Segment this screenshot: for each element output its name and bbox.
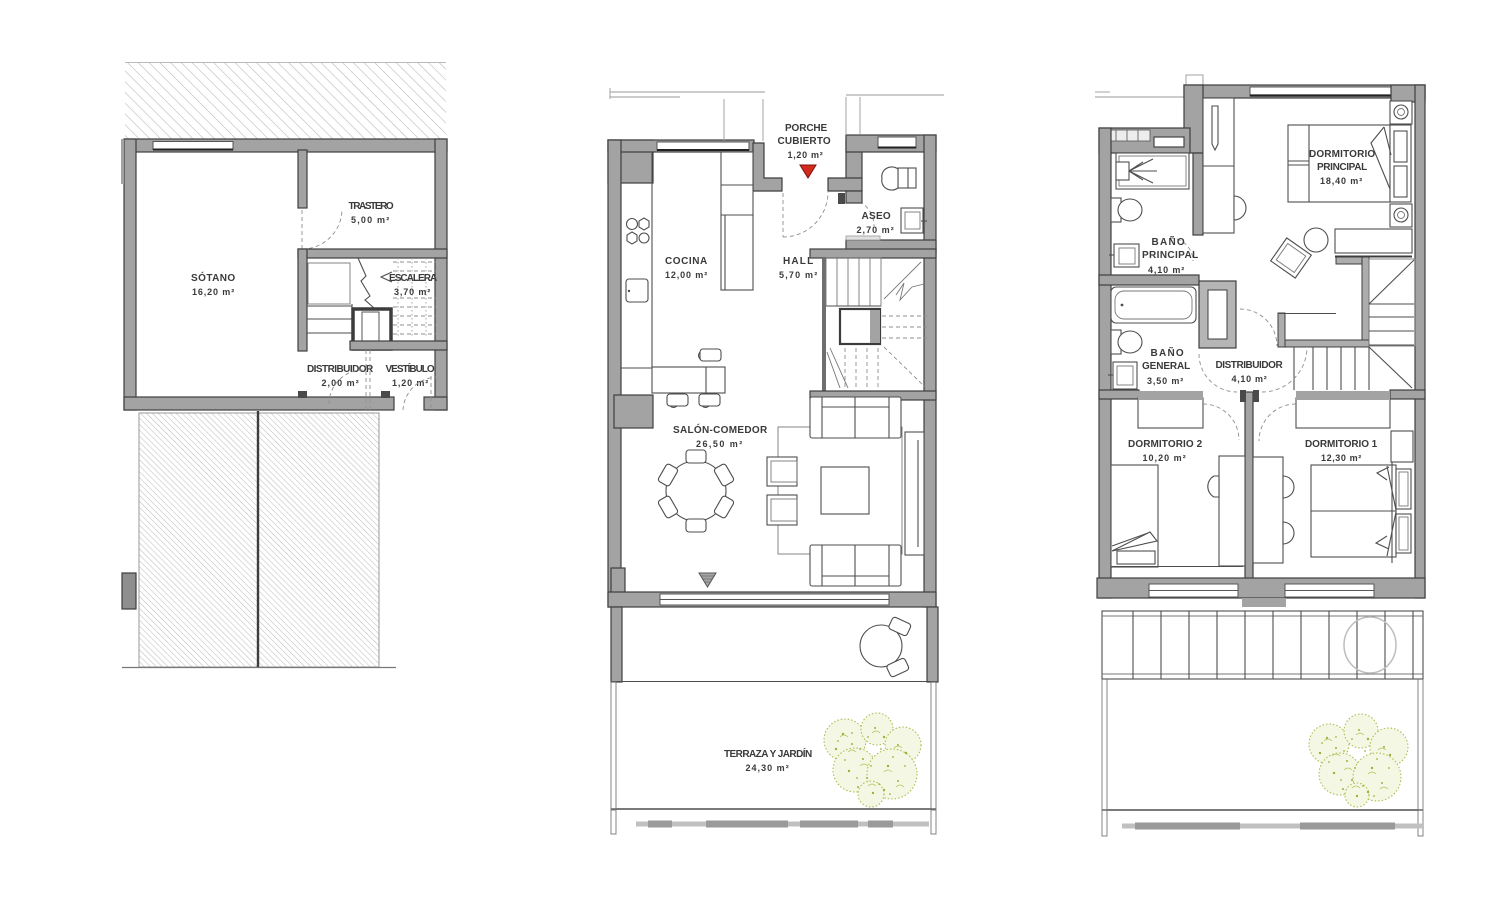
svg-text:2,00 m²: 2,00 m² (322, 378, 359, 388)
svg-text:1,20 m²: 1,20 m² (392, 378, 428, 388)
svg-text:GENERAL: GENERAL (1142, 361, 1190, 372)
svg-text:CUBIERTO: CUBIERTO (778, 136, 831, 147)
svg-text:PORCHE: PORCHE (785, 123, 828, 134)
svg-text:4,10 m²: 4,10 m² (1148, 265, 1184, 275)
svg-text:ASEO: ASEO (862, 211, 891, 222)
svg-text:SALÓN-COMEDOR: SALÓN-COMEDOR (673, 423, 768, 436)
svg-text:26,50 m²: 26,50 m² (696, 439, 742, 449)
svg-text:HALL: HALL (783, 256, 813, 267)
svg-text:3,70 m²: 3,70 m² (394, 287, 430, 297)
svg-text:SÓTANO: SÓTANO (191, 271, 235, 284)
svg-text:BAÑO: BAÑO (1152, 235, 1185, 248)
svg-text:TRASTERO: TRASTERO (349, 201, 394, 212)
svg-text:DORMITORIO 1: DORMITORIO 1 (1305, 439, 1378, 450)
svg-text:PRINCIPAL: PRINCIPAL (1142, 250, 1198, 261)
svg-text:PRINCIPAL: PRINCIPAL (1317, 162, 1367, 173)
svg-text:COCINA: COCINA (665, 256, 707, 267)
svg-text:ESCALERA: ESCALERA (389, 273, 437, 284)
svg-text:VESTÍBULO: VESTÍBULO (386, 362, 435, 375)
svg-text:DISTRIBUIDOR: DISTRIBUIDOR (307, 364, 374, 375)
svg-text:DISTRIBUIDOR: DISTRIBUIDOR (1216, 360, 1284, 371)
svg-text:1,20 m²: 1,20 m² (788, 150, 823, 160)
svg-text:24,30 m²: 24,30 m² (746, 763, 789, 773)
svg-text:2,70 m²: 2,70 m² (857, 225, 894, 235)
svg-text:5,70 m²: 5,70 m² (779, 270, 817, 280)
svg-text:10,20 m²: 10,20 m² (1143, 453, 1186, 463)
svg-text:DORMITORIO 2: DORMITORIO 2 (1128, 439, 1203, 450)
svg-text:12,30 m²: 12,30 m² (1321, 453, 1361, 463)
svg-text:DORMITORIO: DORMITORIO (1309, 149, 1375, 160)
svg-text:18,40 m²: 18,40 m² (1320, 176, 1362, 186)
svg-text:3,50 m²: 3,50 m² (1147, 376, 1183, 386)
svg-text:BAÑO: BAÑO (1151, 346, 1184, 359)
svg-text:TERRAZA Y JARDÍN: TERRAZA Y JARDÍN (724, 747, 812, 760)
svg-text:5,00 m²: 5,00 m² (351, 215, 389, 225)
svg-text:4,10 m²: 4,10 m² (1232, 374, 1267, 384)
svg-text:16,20 m²: 16,20 m² (192, 287, 234, 297)
svg-text:12,00 m²: 12,00 m² (665, 270, 707, 280)
